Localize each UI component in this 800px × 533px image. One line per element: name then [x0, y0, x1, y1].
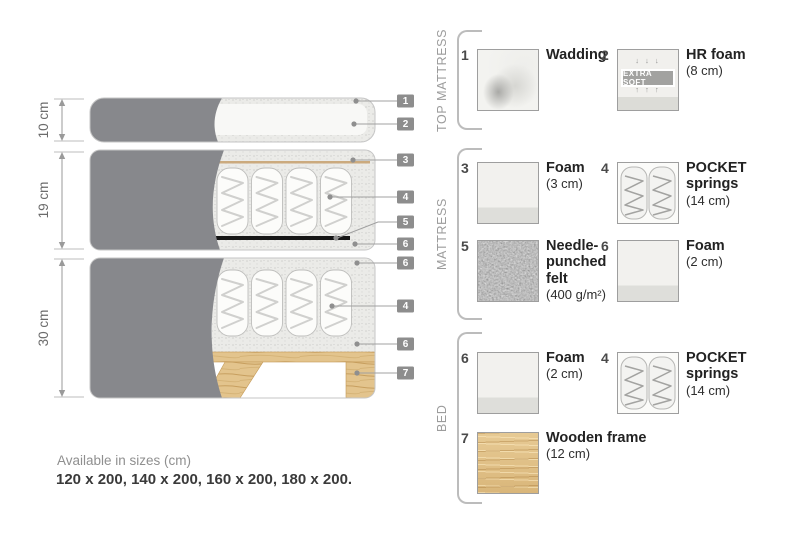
item-name: Wooden frame [546, 430, 676, 446]
item-size: (400 g/m²) [546, 288, 612, 303]
item-number: 4 [601, 350, 609, 366]
item-size: (12 cm) [546, 447, 676, 462]
svg-text:19 cm: 19 cm [36, 182, 51, 219]
svg-text:6: 6 [403, 239, 409, 250]
section-label-top-mattress: TOP MATTRESS [431, 28, 453, 132]
callout-tag: 1 [397, 95, 414, 108]
callout-tag: 6 [397, 338, 414, 351]
section-label-mattress: MATTRESS [431, 148, 453, 320]
item-number: 4 [601, 160, 609, 176]
callout-tag: 4 [397, 300, 414, 313]
item-name: Foam [686, 238, 756, 254]
callout-tag: 4 [397, 191, 414, 204]
pocket-springs-swatch [617, 162, 679, 224]
foam-swatch [477, 352, 539, 414]
bed-base-layer [90, 258, 375, 398]
foam-swatch [477, 162, 539, 224]
mattress-layer [90, 150, 375, 250]
arrows-up-icon: ↑ ↑ ↑ [618, 85, 678, 94]
pocket-springs-swatch [617, 352, 679, 414]
item-size: (2 cm) [686, 255, 756, 270]
felt-swatch [477, 240, 539, 302]
callout-tag: 3 [397, 154, 414, 167]
callout-tag: 7 [397, 367, 414, 380]
dimension-30cm: 30 cm [36, 259, 84, 397]
item-size: (2 cm) [546, 367, 616, 382]
felt-texture [478, 241, 538, 301]
svg-text:7: 7 [403, 368, 409, 379]
item-number: 1 [461, 47, 469, 63]
pocket-springs-icon [618, 353, 678, 413]
callout-tags: 1 2 3 4 5 6 6 4 6 7 [397, 95, 414, 380]
arrows-down-icon: ↓ ↓ ↓ [618, 56, 678, 65]
svg-text:1: 1 [403, 96, 409, 107]
svg-text:6: 6 [403, 258, 409, 269]
item-name: HR foam [686, 47, 766, 63]
wood-leg-right [346, 362, 375, 398]
bed-construction-infographic: 10 cm 19 cm 30 cm [0, 0, 800, 533]
item-label: POCKET springs (14 cm) [686, 160, 756, 208]
dimension-19cm: 19 cm [36, 152, 84, 249]
svg-text:5: 5 [403, 217, 409, 228]
item-label: POCKET springs (14 cm) [686, 350, 756, 398]
svg-text:30 cm: 30 cm [36, 310, 51, 347]
wood-swatch [477, 432, 539, 494]
item-number: 7 [461, 430, 469, 446]
item-name: POCKET springs [686, 350, 756, 383]
top-mattress-layer [90, 98, 375, 142]
svg-text:10 cm: 10 cm [36, 102, 51, 139]
svg-text:4: 4 [403, 301, 409, 312]
svg-text:6: 6 [403, 339, 409, 350]
available-sizes-values: 120 x 200, 140 x 200, 160 x 200, 180 x 2… [56, 471, 352, 488]
item-size: (14 cm) [686, 384, 756, 399]
item-number: 3 [461, 160, 469, 176]
item-size: (8 cm) [686, 64, 766, 79]
item-number: 6 [461, 350, 469, 366]
callout-tag: 6 [397, 238, 414, 251]
item-name: POCKET springs [686, 160, 756, 193]
item-label: HR foam (8 cm) [686, 47, 766, 79]
svg-text:2: 2 [403, 119, 409, 130]
item-label: Foam (2 cm) [686, 238, 756, 270]
svg-text:3: 3 [403, 155, 409, 166]
hr-foam-swatch: ↓ ↓ ↓ EXTRA SOFT ↑ ↑ ↑ [617, 49, 679, 111]
dimension-10cm: 10 cm [36, 99, 84, 141]
item-size: (3 cm) [546, 177, 616, 192]
svg-text:4: 4 [403, 192, 409, 203]
callout-tag: 6 [397, 257, 414, 270]
callout-tag: 2 [397, 118, 414, 131]
pocket-springs-icon [618, 163, 678, 223]
item-number: 5 [461, 238, 469, 254]
section-label-bed: BED [431, 332, 453, 504]
callout-tag: 5 [397, 216, 414, 229]
available-sizes-label: Available in sizes (cm) [57, 453, 191, 468]
item-number: 6 [601, 238, 609, 254]
item-number: 2 [601, 47, 609, 63]
wadding-swatch [477, 49, 539, 111]
item-size: (14 cm) [686, 194, 756, 209]
foam-swatch [617, 240, 679, 302]
item-label: Wooden frame (12 cm) [546, 430, 676, 462]
